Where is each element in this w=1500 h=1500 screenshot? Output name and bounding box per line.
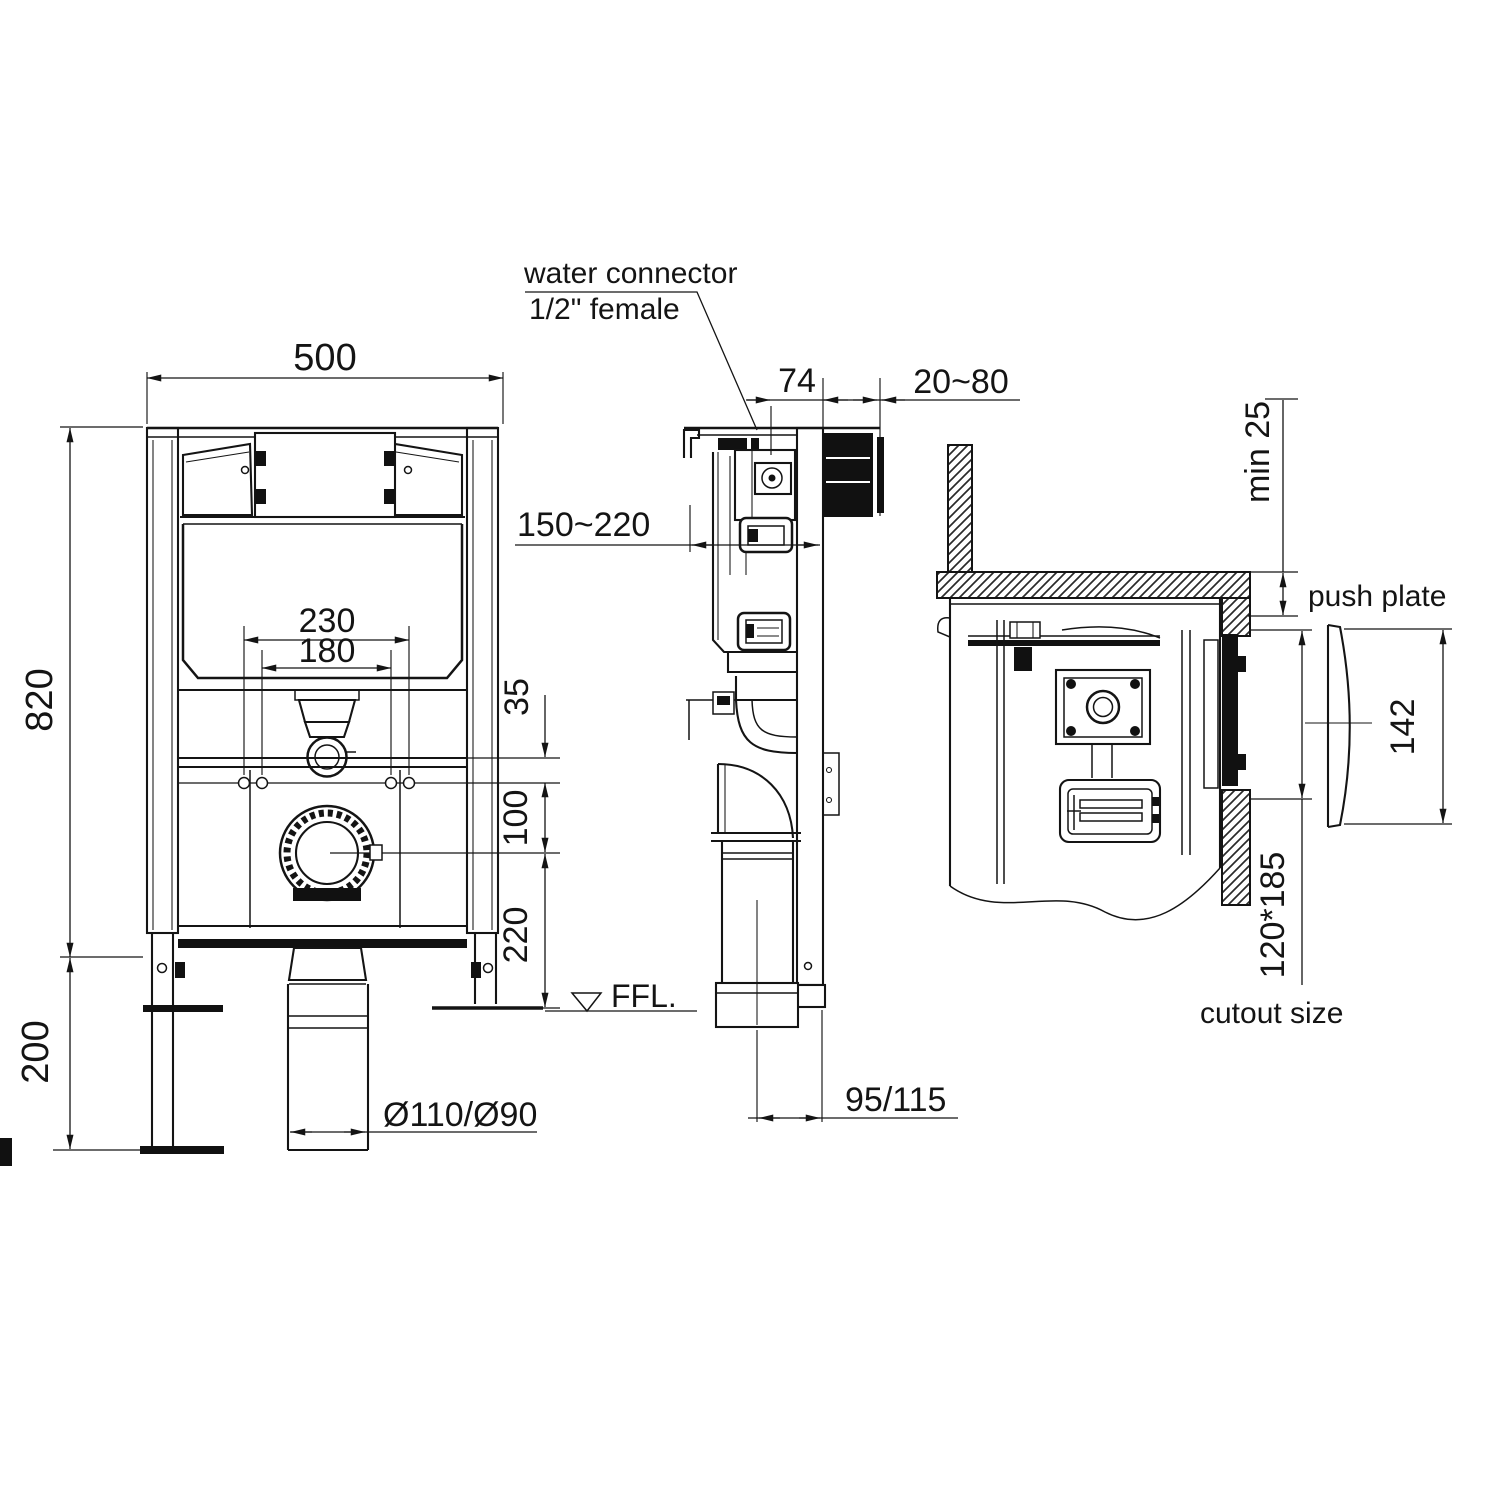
break-line bbox=[950, 868, 1220, 920]
left-rail bbox=[147, 428, 178, 933]
water-connector-label-line1: water connector bbox=[523, 257, 737, 290]
dim-flush-bend-range: 150~220 bbox=[517, 506, 650, 544]
dim-fixing-inner: 180 bbox=[299, 632, 356, 670]
hanger-hook bbox=[684, 430, 699, 458]
fixing-bolt bbox=[239, 778, 250, 789]
dim-inlet-offset: 74 bbox=[778, 362, 816, 400]
dim-push-plate-height: 142 bbox=[1384, 699, 1422, 756]
push-plate-frame bbox=[1222, 634, 1238, 786]
side-view bbox=[684, 428, 884, 1027]
fixing-bolt bbox=[386, 778, 397, 789]
right-rail bbox=[467, 428, 498, 933]
dim-wall-distance: 20~80 bbox=[913, 363, 1009, 401]
wall-stub bbox=[948, 445, 972, 572]
ceiling-slab bbox=[937, 572, 1250, 598]
push-plate-label: push plate bbox=[1308, 580, 1446, 613]
dim-outlet-setback: 95/115 bbox=[845, 1081, 946, 1119]
push-plate-profile bbox=[1305, 625, 1372, 827]
dim-frame-height: 820 bbox=[19, 668, 61, 731]
level-marker-icon bbox=[572, 993, 601, 1011]
dim-min-cover: min 25 bbox=[1239, 401, 1277, 503]
dim-outlet-height: 220 bbox=[497, 907, 535, 964]
dim-leg-extension: 200 bbox=[15, 1020, 57, 1083]
finish-wall-upper bbox=[1222, 598, 1250, 636]
dim-drain-diameter: Ø110/Ø90 bbox=[383, 1096, 537, 1134]
side-rail bbox=[797, 428, 823, 985]
dim-frame-width: 500 bbox=[293, 337, 356, 379]
ffl-label: FFL. bbox=[611, 978, 677, 1014]
fixing-bolt bbox=[404, 778, 415, 789]
cistern-frame-drawing: 500 820 200 230 180 35 100 220 FFL. Ø110… bbox=[0, 0, 1500, 1500]
dim-offset-top: 35 bbox=[498, 678, 536, 716]
fixing-bolt bbox=[257, 778, 268, 789]
cutout-size-label: cutout size bbox=[1200, 997, 1343, 1030]
left-foot bbox=[140, 1146, 224, 1154]
left-hanger-bracket bbox=[183, 444, 252, 515]
edge-mark bbox=[0, 1138, 12, 1166]
dim-offset-mid: 100 bbox=[497, 790, 535, 847]
left-foot-plate bbox=[143, 1005, 223, 1012]
technical-drawing-page: 500 820 200 230 180 35 100 220 FFL. Ø110… bbox=[0, 0, 1500, 1500]
water-connector-label-line2: 1/2" female bbox=[529, 293, 680, 326]
dim-cutout: 120*185 bbox=[1254, 852, 1292, 979]
wall-anchor-block bbox=[823, 433, 873, 517]
wall-section-view bbox=[937, 445, 1250, 920]
right-hanger-bracket bbox=[393, 444, 462, 515]
finish-wall-lower bbox=[1222, 790, 1250, 905]
flush-unit-access-box bbox=[255, 433, 395, 517]
drain-pipe bbox=[288, 984, 368, 1150]
